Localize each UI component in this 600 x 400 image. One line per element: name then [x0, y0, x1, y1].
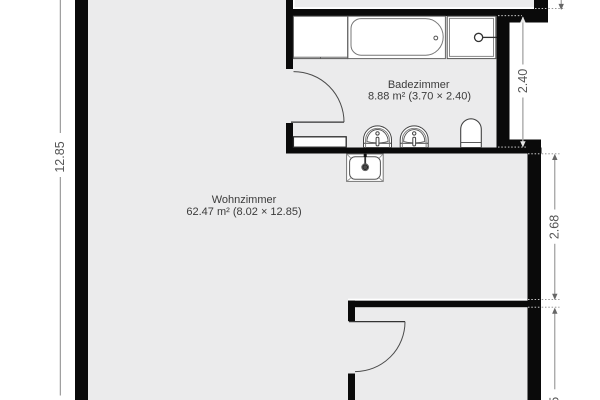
svg-text:12.85: 12.85 [53, 141, 67, 172]
svg-text:62.47 m² (8.02 × 12.85): 62.47 m² (8.02 × 12.85) [186, 206, 301, 218]
svg-text:2.68: 2.68 [547, 215, 561, 239]
svg-text:8.88 m² (3.70 × 2.40): 8.88 m² (3.70 × 2.40) [368, 90, 471, 102]
svg-text:2.40: 2.40 [516, 69, 530, 93]
svg-text:Wohnzimmer: Wohnzimmer [212, 194, 277, 206]
svg-text:Badezimmer: Badezimmer [388, 79, 450, 91]
